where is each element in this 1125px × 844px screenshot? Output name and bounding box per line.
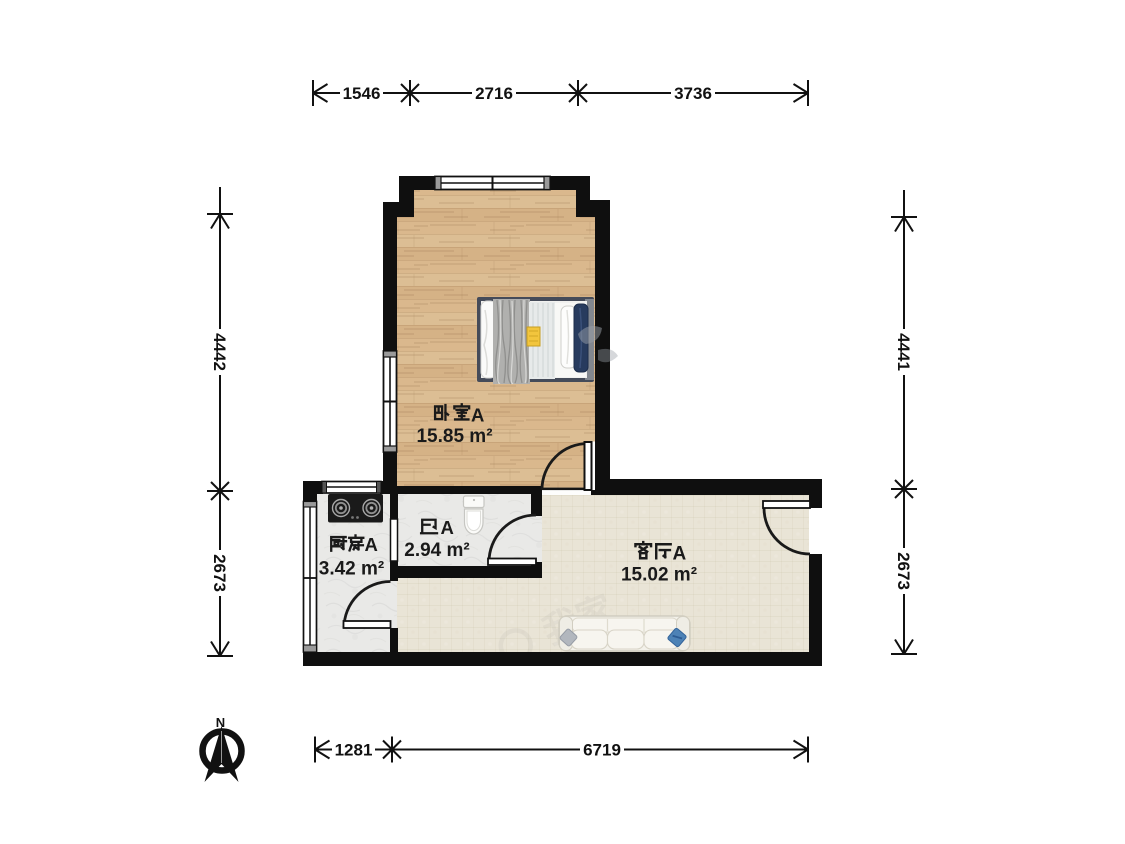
svg-text:4441: 4441 [894, 333, 913, 371]
svg-text:3.42 m²: 3.42 m² [319, 559, 384, 580]
svg-text:2673: 2673 [210, 554, 229, 592]
svg-text:A: A [673, 544, 687, 565]
svg-text:1281: 1281 [335, 741, 373, 760]
svg-text:1546: 1546 [343, 84, 381, 103]
svg-text:15.02 m²: 15.02 m² [621, 565, 697, 586]
svg-text:N: N [216, 715, 225, 730]
svg-text:A: A [365, 534, 378, 555]
svg-text:A: A [441, 517, 454, 538]
svg-text:2673: 2673 [894, 552, 913, 590]
svg-text:A: A [471, 405, 484, 426]
svg-text:3736: 3736 [674, 84, 712, 103]
svg-text:4442: 4442 [210, 333, 229, 371]
svg-text:15.85 m²: 15.85 m² [416, 426, 492, 447]
svg-text:6719: 6719 [583, 741, 621, 760]
svg-text:2716: 2716 [475, 84, 513, 103]
svg-text:2.94 m²: 2.94 m² [404, 540, 469, 561]
